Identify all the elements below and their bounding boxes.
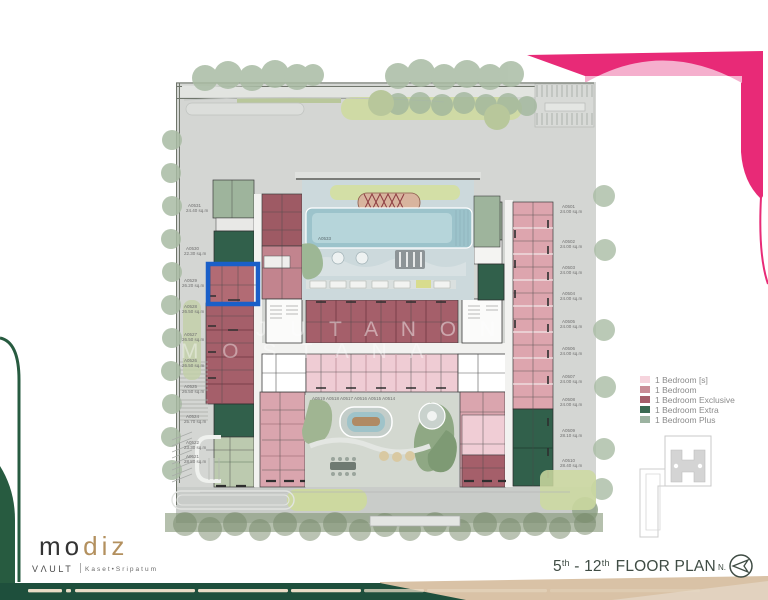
svg-text:A0533: A0533: [318, 236, 332, 241]
svg-text:1 Bedroom Exclusive: 1 Bedroom Exclusive: [655, 395, 735, 405]
svg-text:28.10 sq.m: 28.10 sq.m: [560, 433, 583, 438]
svg-text:26.50 sq.m: 26.50 sq.m: [182, 309, 205, 314]
svg-text:24.00 sq.m: 24.00 sq.m: [560, 244, 583, 249]
svg-text:VΛULT: VΛULT: [32, 564, 73, 574]
svg-text:J U T A N O N: J U T A N O N: [256, 318, 504, 341]
svg-text:24.00 sq.m: 24.00 sq.m: [560, 324, 583, 329]
svg-text:24.00 sq.m: 24.00 sq.m: [560, 402, 583, 407]
svg-text:26.20 sq.m: 26.20 sq.m: [182, 283, 205, 288]
svg-text:24.00 sq.m: 24.00 sq.m: [560, 296, 583, 301]
svg-text:24.40 sq.m: 24.40 sq.m: [186, 208, 209, 213]
svg-text:A0519 A0518 A0517 A0516 A0: A0519 A0518 A0517 A0516 A0515 A0514: [312, 396, 396, 401]
svg-text:24.00 sq.m: 24.00 sq.m: [560, 379, 583, 384]
svg-text:26.50 sq.m: 26.50 sq.m: [182, 389, 205, 394]
svg-text:28.80 sq.m: 28.80 sq.m: [184, 459, 207, 464]
svg-text:K a s e t • S r i p a t u m: K a s e t • S r i p a t u m: [85, 566, 156, 573]
svg-text:1 Bedroom Plus: 1 Bedroom Plus: [655, 415, 715, 425]
svg-text:28.40 sq.m: 28.40 sq.m: [560, 463, 583, 468]
svg-text:24.00 sq.m: 24.00 sq.m: [560, 351, 583, 356]
svg-text:1 Bedroom Extra: 1 Bedroom Extra: [655, 405, 719, 415]
svg-text:N.: N.: [718, 563, 726, 572]
svg-text:23.30 sq.m: 23.30 sq.m: [184, 445, 207, 450]
svg-text:1 Bedroom [s]: 1 Bedroom [s]: [655, 375, 708, 385]
svg-text:24.00 sq.m: 24.00 sq.m: [560, 270, 583, 275]
svg-text:25.70 sq.m: 25.70 sq.m: [184, 419, 207, 424]
svg-text:22.30 sq.m: 22.30 sq.m: [184, 251, 207, 256]
svg-text:24.00 sq.m: 24.00 sq.m: [560, 209, 583, 214]
svg-text:26.50 sq.m: 26.50 sq.m: [182, 363, 205, 368]
svg-text:K M O S T A N A: K M O S T A N A: [143, 340, 432, 363]
svg-text:5th - 12thFLOOR PLAN: 5th - 12thFLOOR PLAN: [553, 558, 716, 575]
svg-text:modiz: modiz: [39, 531, 128, 561]
svg-text:1 Bedroom: 1 Bedroom: [655, 385, 697, 395]
